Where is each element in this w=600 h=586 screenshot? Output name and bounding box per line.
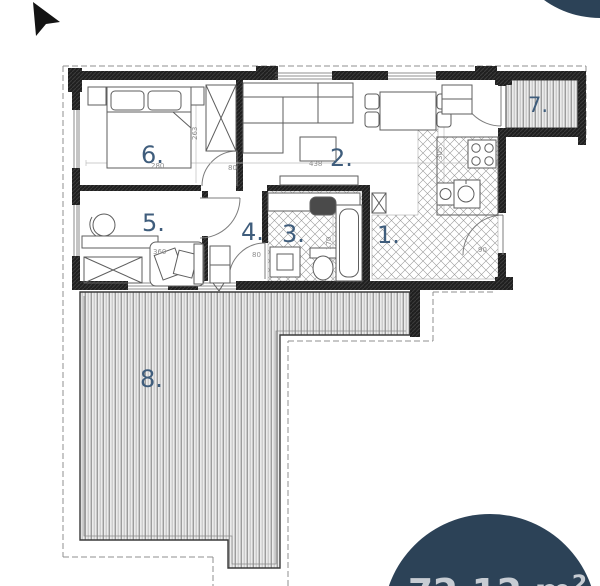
- dim-90-entry: 90: [478, 246, 487, 254]
- area-badge: 72.12 m2: [383, 514, 597, 586]
- chair: [365, 94, 379, 109]
- north-arrow-icon: [33, 2, 60, 36]
- label-room-7: 7.: [528, 93, 548, 117]
- window-bedroom1: [74, 110, 79, 168]
- floor-plan-canvas: 1. 2. 3. 4. 5. 6. 7. 8. 263 280 438 305 …: [0, 0, 600, 586]
- dim-80-bedroom-door: 80: [228, 164, 237, 172]
- dim-263: 263: [191, 127, 199, 140]
- dim-170: 170: [325, 237, 333, 250]
- label-room-1: 1.: [377, 221, 400, 249]
- basin: [310, 197, 336, 215]
- label-room-4: 4.: [241, 218, 264, 246]
- dim-280: 280: [151, 162, 164, 170]
- tv-bench: [280, 176, 358, 185]
- window-bedroom2: [74, 205, 79, 256]
- chair: [365, 112, 379, 127]
- area-badge-text: 72.12 m2: [408, 572, 587, 586]
- pillow: [148, 91, 181, 110]
- door-room5: [200, 198, 240, 238]
- dining-table: [380, 92, 436, 130]
- dim-80-hall: 80: [252, 251, 261, 259]
- window-living-2: [388, 73, 436, 79]
- terrace: [80, 292, 410, 568]
- window-living-1: [275, 73, 332, 79]
- corner-circle-top: [504, 0, 600, 18]
- desk: [82, 236, 158, 248]
- label-room-5: 5.: [142, 209, 165, 237]
- hallway-furniture: [210, 246, 230, 291]
- label-room-3: 3.: [282, 220, 305, 248]
- floor-plan-drawing: 1. 2. 3. 4. 5. 6. 7. 8. 263 280 438 305 …: [0, 0, 600, 586]
- entry-furniture: [372, 193, 386, 213]
- wardrobe: [206, 85, 236, 151]
- desk-chair: [93, 214, 115, 236]
- bed-back: [194, 244, 203, 284]
- pillow: [111, 91, 144, 110]
- label-room-8: 8.: [140, 365, 163, 393]
- wardrobe: [84, 257, 142, 283]
- toilet-bowl: [313, 256, 333, 280]
- door-bathroom: [229, 243, 265, 279]
- dim-438: 438: [309, 160, 322, 168]
- dim-305: 305: [436, 147, 444, 160]
- dim-360: 360: [153, 248, 166, 256]
- washer: [270, 247, 300, 277]
- label-room-2: 2.: [330, 144, 353, 172]
- nightstand: [88, 87, 106, 105]
